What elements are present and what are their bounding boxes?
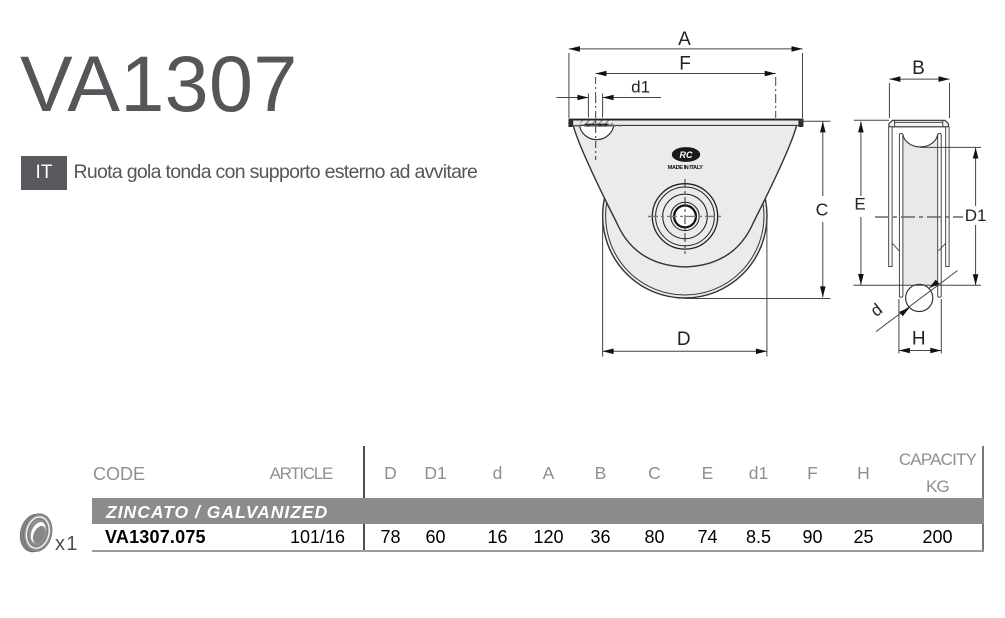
svg-text:H: H — [912, 329, 926, 350]
svg-text:d1: d1 — [631, 78, 650, 97]
svg-text:C: C — [816, 200, 829, 220]
svg-text:B: B — [912, 58, 925, 79]
svg-text:D1: D1 — [965, 206, 987, 225]
svg-text:E: E — [854, 195, 865, 214]
svg-text:F: F — [679, 54, 691, 75]
svg-text:MADE IN ITALY: MADE IN ITALY — [668, 165, 703, 171]
svg-text:A: A — [678, 29, 691, 50]
svg-text:d: d — [867, 300, 886, 321]
svg-text:D: D — [677, 329, 691, 350]
svg-text:RC: RC — [680, 150, 693, 160]
